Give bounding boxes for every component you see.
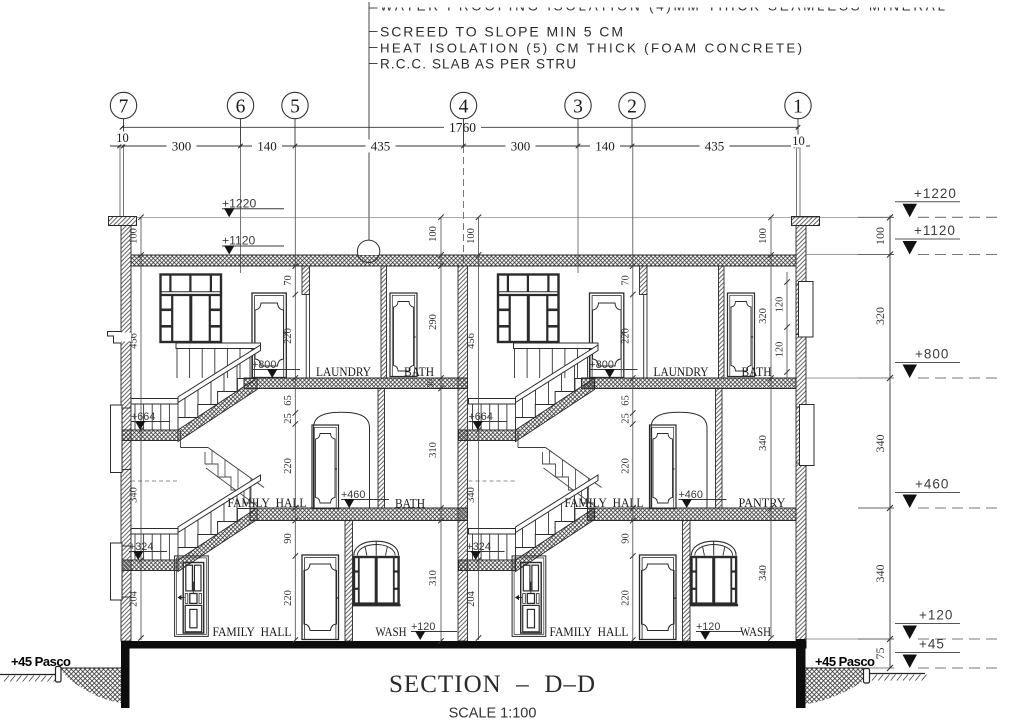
svg-text:100: 100	[428, 226, 439, 242]
svg-text:+1220: +1220	[222, 196, 256, 210]
svg-text:340: 340	[873, 565, 887, 583]
svg-text:290: 290	[428, 314, 439, 330]
svg-text:300: 300	[511, 139, 531, 154]
svg-text:+45: +45	[919, 637, 945, 652]
svg-text:435: 435	[705, 139, 725, 154]
svg-text:90: 90	[283, 533, 294, 544]
svg-text:3: 3	[573, 97, 583, 118]
svg-text:R.C.C. SLAB AS PER STRU: R.C.C. SLAB AS PER STRU	[380, 57, 576, 72]
svg-text:1: 1	[793, 97, 803, 118]
svg-text:100: 100	[873, 227, 887, 245]
svg-text:30: 30	[426, 379, 436, 389]
svg-text:BATH: BATH	[742, 364, 772, 379]
svg-text:+460: +460	[915, 477, 949, 492]
svg-text:340: 340	[129, 487, 140, 503]
svg-text:5: 5	[290, 97, 300, 118]
svg-text:FAMILY HALL: FAMILY HALL	[228, 495, 307, 510]
svg-text:340: 340	[873, 435, 887, 453]
svg-text:6: 6	[236, 97, 246, 118]
svg-text:BATH: BATH	[404, 364, 434, 379]
svg-text:7: 7	[119, 97, 129, 118]
svg-text:4: 4	[459, 97, 469, 118]
svg-text:+1120: +1120	[914, 223, 956, 238]
svg-text:FAMILY HALL: FAMILY HALL	[213, 624, 292, 639]
svg-text:BATH: BATH	[395, 496, 425, 511]
svg-text:220: 220	[283, 590, 294, 606]
svg-text:140: 140	[257, 139, 277, 154]
svg-text:FAMILY HALL: FAMILY HALL	[550, 624, 629, 639]
svg-text:204: 204	[129, 590, 140, 607]
svg-text:+1220: +1220	[914, 186, 957, 201]
svg-text:100: 100	[758, 228, 769, 244]
svg-text:320: 320	[873, 307, 887, 325]
svg-text:FAMILY HALL: FAMILY HALL	[565, 495, 644, 510]
svg-text:+45 Pasco: +45 Pasco	[815, 654, 875, 669]
svg-text:340: 340	[758, 435, 769, 451]
svg-text:2: 2	[627, 97, 637, 118]
svg-text:+45 Pasco: +45 Pasco	[11, 654, 71, 669]
svg-text:+800: +800	[915, 347, 949, 362]
svg-text:310: 310	[428, 570, 439, 586]
svg-text:140: 140	[595, 139, 615, 154]
svg-text:220: 220	[283, 458, 294, 474]
svg-text:SCALE 1:100: SCALE 1:100	[449, 706, 537, 721]
svg-text:1760: 1760	[449, 120, 476, 135]
svg-text:LAUNDRY: LAUNDRY	[316, 364, 372, 379]
svg-text:340: 340	[758, 565, 769, 581]
svg-text:70: 70	[283, 275, 294, 286]
svg-text:300: 300	[172, 139, 192, 154]
svg-text:SECTION – D–D: SECTION – D–D	[389, 671, 596, 698]
svg-text:320: 320	[758, 308, 769, 324]
svg-text:WASH: WASH	[740, 624, 771, 639]
svg-text:220: 220	[283, 328, 294, 344]
svg-text:75: 75	[873, 648, 887, 660]
svg-text:10: 10	[792, 134, 805, 148]
svg-text:WASH: WASH	[376, 624, 407, 639]
svg-text:+1120: +1120	[222, 234, 256, 248]
svg-text:25: 25	[283, 413, 294, 424]
svg-text:120: 120	[775, 297, 786, 313]
svg-text:+120: +120	[919, 608, 953, 623]
svg-text:435: 435	[371, 139, 391, 154]
svg-text:SCREED TO SLOPE MIN 5 CM: SCREED TO SLOPE MIN 5 CM	[380, 24, 623, 40]
svg-text:PANTRY: PANTRY	[739, 495, 787, 510]
svg-text:65: 65	[283, 395, 294, 406]
svg-text:LAUNDRY: LAUNDRY	[654, 364, 710, 379]
svg-text:100: 100	[129, 228, 140, 244]
svg-text:310: 310	[428, 442, 439, 458]
svg-text:120: 120	[775, 342, 786, 358]
svg-text:10: 10	[116, 131, 129, 145]
